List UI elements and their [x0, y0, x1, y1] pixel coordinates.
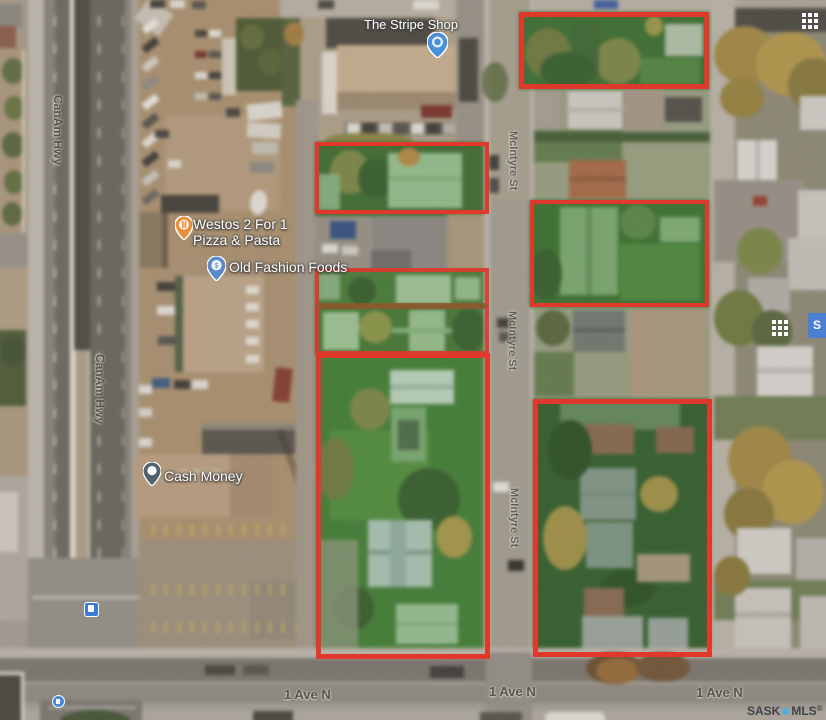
- svg-text:$: $: [215, 263, 219, 270]
